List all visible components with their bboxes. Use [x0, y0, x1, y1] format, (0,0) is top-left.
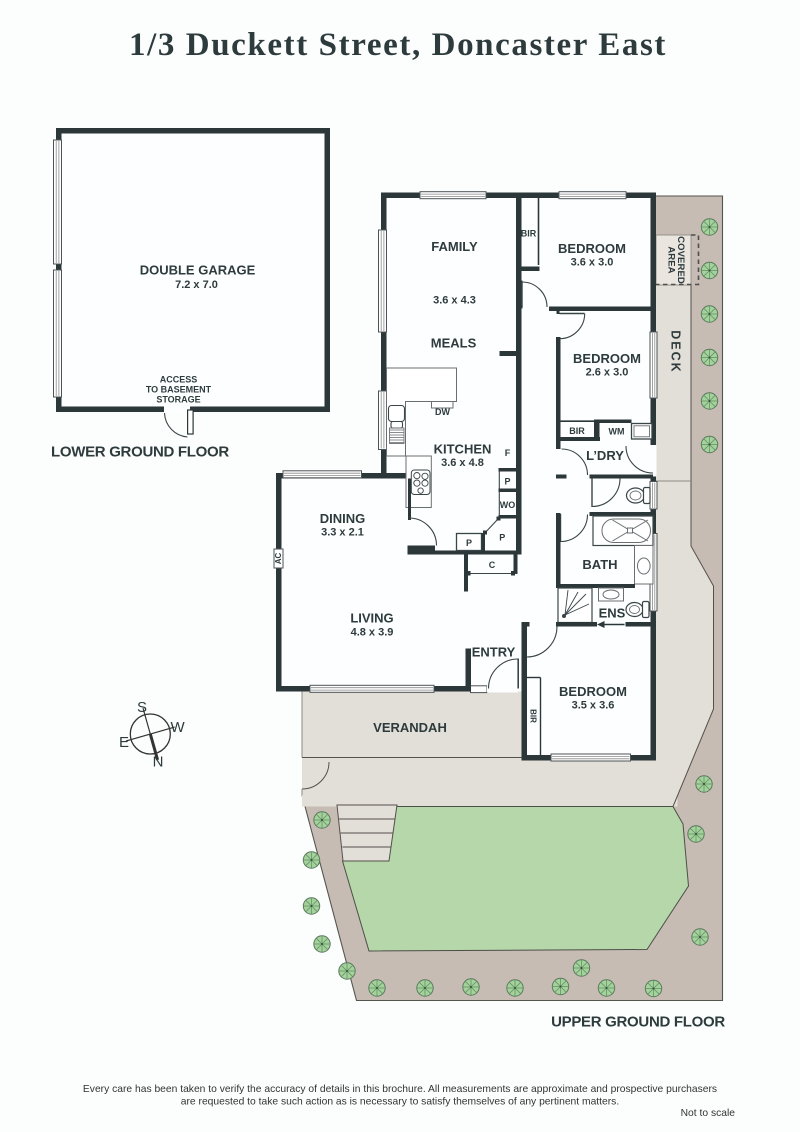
- svg-text:BIR: BIR: [529, 709, 538, 723]
- svg-text:DECK: DECK: [669, 330, 683, 373]
- svg-text:STORAGE: STORAGE: [156, 395, 200, 405]
- svg-text:P: P: [466, 538, 472, 548]
- svg-text:WM: WM: [609, 427, 625, 437]
- svg-text:VERANDAH: VERANDAH: [373, 720, 447, 735]
- svg-text:ENS: ENS: [599, 606, 626, 621]
- svg-text:BIR: BIR: [569, 426, 585, 436]
- svg-text:3.6 x 4.8: 3.6 x 4.8: [441, 457, 484, 469]
- svg-text:BEDROOM: BEDROOM: [559, 684, 627, 699]
- svg-text:LIVING: LIVING: [350, 611, 393, 626]
- svg-text:N: N: [153, 754, 164, 771]
- svg-text:FAMILY: FAMILY: [431, 239, 478, 254]
- svg-text:C: C: [489, 560, 496, 570]
- svg-text:BEDROOM: BEDROOM: [573, 351, 641, 366]
- svg-text:L’DRY: L’DRY: [586, 448, 624, 463]
- svg-text:AC: AC: [274, 553, 283, 565]
- svg-text:AREA: AREA: [666, 246, 677, 273]
- svg-text:are requested to take such act: are requested to take such action as is …: [181, 1097, 619, 1108]
- svg-text:P: P: [499, 533, 505, 543]
- svg-text:MEALS: MEALS: [431, 336, 477, 351]
- svg-text:KITCHEN: KITCHEN: [434, 442, 492, 457]
- svg-text:WO: WO: [500, 500, 516, 510]
- svg-text:Every care has been taken to v: Every care has been taken to verify the …: [83, 1084, 717, 1095]
- svg-text:P: P: [504, 477, 510, 487]
- svg-text:3.3 x 2.1: 3.3 x 2.1: [321, 527, 364, 539]
- svg-text:BEDROOM: BEDROOM: [558, 241, 626, 256]
- svg-text:7.2 x 7.0: 7.2 x 7.0: [175, 279, 218, 291]
- svg-text:3.6 x 3.0: 3.6 x 3.0: [571, 257, 614, 269]
- svg-text:3.6 x 4.3: 3.6 x 4.3: [433, 295, 476, 307]
- svg-text:3.5 x 3.6: 3.5 x 3.6: [572, 700, 615, 712]
- svg-text:4.8 x 3.9: 4.8 x 3.9: [351, 627, 394, 639]
- svg-text:F: F: [505, 448, 511, 458]
- svg-text:E: E: [119, 734, 129, 751]
- svg-text:2.6 x 3.0: 2.6 x 3.0: [586, 367, 629, 379]
- svg-text:ENTRY: ENTRY: [472, 645, 516, 660]
- svg-text:BIR: BIR: [521, 229, 537, 239]
- svg-text:DINING: DINING: [320, 511, 366, 526]
- svg-text:Not to scale: Not to scale: [681, 1108, 736, 1119]
- svg-text:W: W: [171, 719, 186, 736]
- svg-text:UPPER GROUND FLOOR: UPPER GROUND FLOOR: [551, 1014, 725, 1031]
- svg-text:BATH: BATH: [582, 557, 617, 572]
- svg-text:1/3 Duckett Street, Doncaster: 1/3 Duckett Street, Doncaster East: [129, 27, 667, 63]
- svg-text:DOUBLE GARAGE: DOUBLE GARAGE: [140, 263, 256, 278]
- svg-text:ACCESS: ACCESS: [160, 375, 198, 385]
- svg-text:DW: DW: [435, 407, 450, 417]
- svg-text:S: S: [137, 699, 147, 716]
- svg-text:LOWER GROUND FLOOR: LOWER GROUND FLOOR: [51, 444, 229, 461]
- svg-text:TO BASEMENT: TO BASEMENT: [146, 385, 212, 395]
